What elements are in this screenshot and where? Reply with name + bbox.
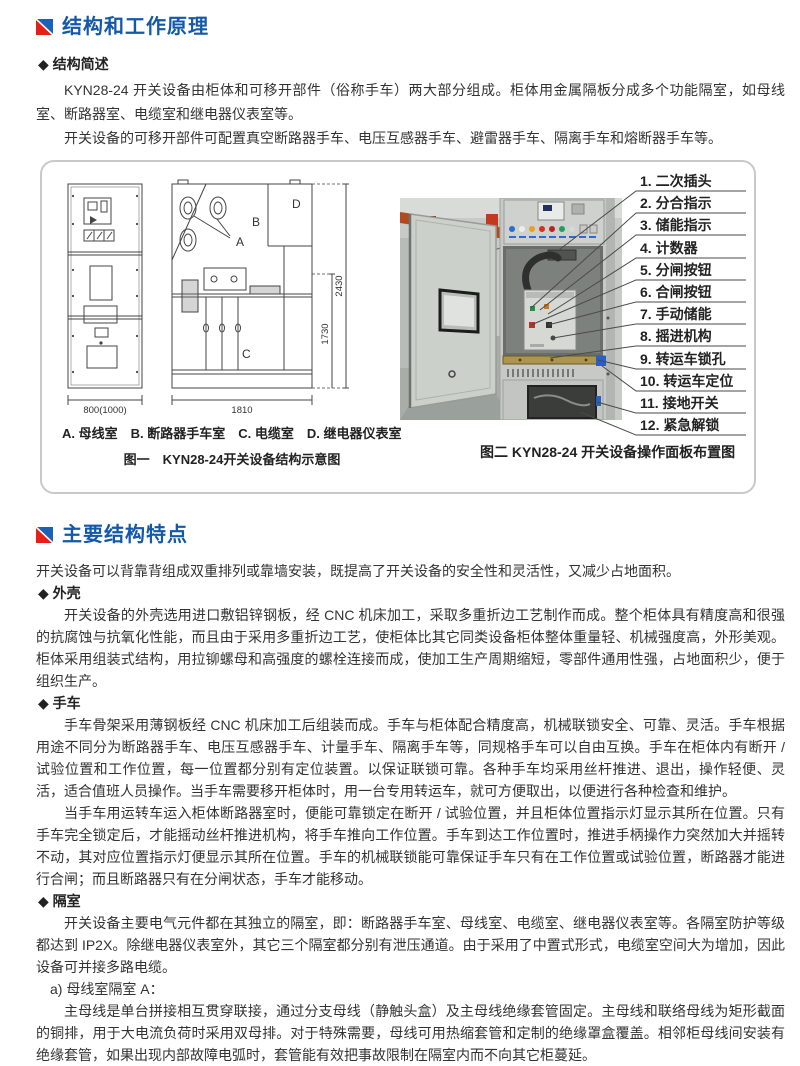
page: 结构和工作原理 ◆ 结构简述 KYN28-24 开关设备由柜体和可移开部件（俗称… — [0, 0, 800, 1066]
callout-secondary-plug: 1. 二次插头 — [640, 172, 752, 190]
callout-transfer-positioning: 10. 转运车定位 — [640, 372, 752, 390]
figure-panel: A B C D 800(1000) 1810 2430 1730 A. 母线室 … — [40, 160, 756, 494]
figure1-label-C: C — [242, 347, 251, 361]
section2: 主要结构特点 开关设备可以背靠背组成双重排列或靠墙安装，既提高了开关设备的安全性… — [36, 522, 785, 1066]
callout-opening-button: 5. 分闸按钮 — [640, 261, 752, 279]
callout-transfer-lock-hole: 9. 转运车锁孔 — [640, 350, 752, 368]
figure1-room-legend: A. 母线室 B. 断路器手车室 C. 电缆室 D. 继电器仪表室 — [62, 422, 392, 446]
busbar-compartment-subtitle: a) 母线室隔室 A： — [50, 978, 785, 1000]
figure1-dim-height-outer: 2430 — [334, 275, 345, 296]
figure2-switchgear-photo — [400, 198, 622, 420]
callout-manual-energy: 7. 手动储能 — [640, 305, 752, 323]
busbar-compartment-paragraph: 主母线是单台拼接相互贯穿联接，通过分支母线（静触头盒）及主母线绝缘套管固定。主母… — [36, 1000, 785, 1066]
figure1-label-B: B — [252, 215, 260, 229]
figure1-label-A: A — [236, 235, 244, 249]
callout-closing-button: 6. 合闸按钮 — [640, 283, 752, 301]
figure1-dim-depth: 1810 — [231, 405, 252, 416]
figure1-dim-front-width: 800(1000) — [83, 405, 126, 416]
figure1-caption: 图一 KYN28-24开关设备结构示意图 — [102, 448, 362, 472]
section1-header: 结构和工作原理 — [36, 14, 785, 40]
callout-open-close-indicator: 2. 分合指示 — [640, 194, 752, 212]
callout-energy-indicator: 3. 储能指示 — [640, 216, 752, 234]
section-marker-icon — [36, 527, 53, 543]
figure1-dim-height-inner: 1730 — [320, 323, 331, 344]
callout-counter: 4. 计数器 — [640, 239, 752, 257]
section2-title: 主要结构特点 — [62, 523, 188, 547]
trolley-paragraph-2: 当手车用运转车运入柜体断路器室时，便能可靠锁定在断开 / 试验位置，并且柜体位置… — [36, 802, 785, 890]
trolley-paragraph-1: 手车骨架采用薄钢板经 CNC 机床加工后组装而成。手车与柜体配合精度高，机械联锁… — [36, 714, 785, 802]
section1-paragraph-1: KYN28-24 开关设备由柜体和可移开部件（俗称手车）两大部分组成。柜体用金属… — [36, 78, 785, 126]
section2-intro: 开关设备可以背靠背组成双重排列或靠墙安装，既提高了开关设备的安全性和灵活性，又减… — [36, 560, 785, 582]
figure2-panel: 1. 二次插头 2. 分合指示 3. 储能指示 4. 计数器 5. 分闸按钮 6… — [398, 174, 754, 474]
figure1-label-D: D — [292, 197, 301, 211]
bullet-trolley: ◆ 手车 — [38, 692, 785, 714]
bullet-compartment: ◆ 隔室 — [38, 890, 785, 912]
callout-emergency-unlock: 12. 紧急解锁 — [640, 416, 752, 434]
section1-title: 结构和工作原理 — [62, 15, 209, 39]
callout-racking-mechanism: 8. 摇进机构 — [640, 327, 752, 345]
shell-paragraph: 开关设备的外壳选用进口敷铝锌钢板，经 CNC 机床加工，采取多重折边工艺制作而成… — [36, 604, 785, 692]
section-marker-icon — [36, 19, 53, 35]
callout-earthing-switch: 11. 接地开关 — [640, 394, 752, 412]
compartment-paragraph: 开关设备主要电气元件都在其独立的隔室，即：断路器手车室、母线室、电缆室、继电器仪… — [36, 912, 785, 978]
bullet-structure-overview: ◆ 结构简述 — [38, 52, 785, 76]
figure2-caption: 图二 KYN28-24 开关设备操作面板布置图 — [480, 440, 735, 464]
bullet-shell: ◆ 外壳 — [38, 582, 785, 604]
figure1-structure-drawing: A B C D 800(1000) 1810 2430 1730 — [54, 176, 390, 420]
section2-header: 主要结构特点 — [36, 522, 785, 548]
section1-paragraph-2: 开关设备的可移开部件可配置真空断路器手车、电压互感器手车、避雷器手车、隔离手车和… — [36, 126, 785, 150]
